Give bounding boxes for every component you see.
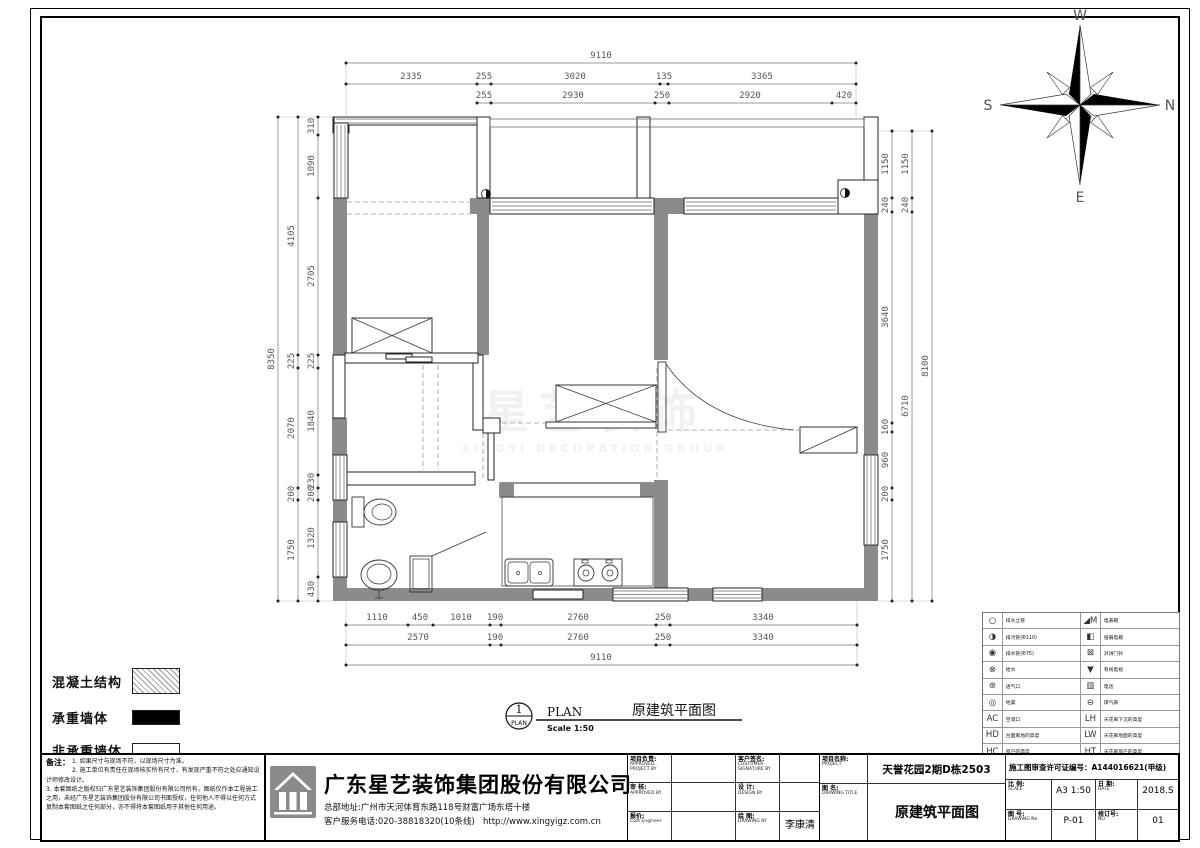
dimensions-top: 9110 2335 255 3020 135 3365 255 2930 250…	[346, 51, 856, 117]
phone-icon: ▥	[1081, 679, 1101, 694]
field-quotation-value	[672, 812, 736, 840]
legend-table-label: 地漏	[1003, 695, 1081, 710]
svg-text:3340: 3340	[752, 633, 774, 643]
svg-text:310: 310	[307, 118, 317, 134]
company-phone: 客户服务电话:020-38818320(10条线)	[324, 817, 475, 827]
company-logo-icon	[270, 766, 316, 830]
svg-text:240: 240	[901, 197, 911, 213]
legend-table-label: 天花离下沉的高度	[1101, 711, 1179, 726]
svg-text:225: 225	[287, 353, 297, 369]
company-name: 广东星艺装饰集团股份有限公司	[324, 769, 632, 799]
field-customer-signature: 客户签名: CUSTOMER SIGNATURE BY	[736, 755, 780, 783]
legend-table-label: 排水立管	[1003, 613, 1081, 628]
legend-table-label: 天花离地面的高度	[1101, 728, 1179, 743]
svg-text:1090: 1090	[307, 155, 317, 177]
svg-text:8100: 8100	[921, 355, 931, 377]
field-design: 设 计: DESIGN BY	[736, 783, 780, 811]
symbol-legend-table: ○ 排水立管 ◢M 电表箱 ◑ 排污管(Φ110) ◧ 强弱电箱 ◉ 排水管(Φ…	[982, 612, 1180, 761]
legend-table-row: ◑ 排污管(Φ110) ◧ 强弱电箱	[983, 629, 1179, 645]
legend-table-row: AC 空调口 LH 天花离下沉的高度	[983, 711, 1179, 727]
legend-table-label: 有线电视	[1101, 662, 1179, 677]
drawing-no-label: 图 号: DRAWING No	[1006, 810, 1052, 840]
bearing-wall-swatch	[132, 710, 180, 725]
svg-text:2335: 2335	[400, 72, 422, 82]
floor-drain-icon: ◎	[983, 695, 1003, 710]
svg-text:2070: 2070	[287, 417, 297, 439]
legend-table-label: 排水管(Φ75)	[1003, 646, 1081, 661]
note-line: 1. 如果尺寸与现场不符，以现场尺寸为准。	[46, 757, 260, 766]
kitchen-sink	[505, 559, 553, 586]
svg-text:2760: 2760	[567, 633, 589, 643]
rev-no-value: 01	[1138, 810, 1178, 840]
svg-text:1150: 1150	[881, 153, 891, 175]
toilet-tank	[352, 497, 364, 527]
title-block: 备注： 1. 如果尺寸与现场不符，以现场尺寸为准。 2. 施工单位有责任在现场核…	[40, 753, 1180, 842]
stove	[574, 559, 622, 586]
company-address: 总部地址:广州市天河体育东路118号财富广场东塔十楼	[324, 801, 632, 813]
drawing-info-section: 施工图审查许可证编号：A144016621(甲级) 比 例: SCALE A3 …	[1006, 755, 1178, 840]
non-bearing-walls	[333, 117, 878, 497]
rev-no-label: 修订号: NO.	[1096, 810, 1138, 840]
svg-text:255: 255	[476, 91, 492, 101]
svg-text:160: 160	[881, 419, 891, 435]
compass-rose: W E S N	[984, 8, 1176, 206]
ceiling-drop-height-icon: LH	[1081, 711, 1101, 726]
gas-meter-icon: ⊖	[1081, 695, 1101, 710]
company-website: http://www.xingyigz.com.cn	[483, 817, 601, 827]
ac-outlet-icon: AC	[983, 711, 1003, 726]
meter-box-icon: ◢M	[1081, 613, 1101, 628]
svg-text:1: 1	[516, 703, 523, 716]
legend-table-row: ⊛ 透气口 ▥ 电话	[983, 679, 1179, 695]
scale-label: 比 例: SCALE	[1006, 780, 1052, 810]
toilet-bowl	[364, 499, 396, 525]
svg-text:3020: 3020	[564, 72, 586, 82]
water-supply-icon: ⊗	[983, 662, 1003, 677]
svg-text:2920: 2920	[739, 91, 761, 101]
legend-row-concrete: 混凝土结构	[52, 668, 202, 694]
svg-text:XINGYI DECORATION GROUP: XINGYI DECORATION GROUP	[462, 442, 728, 455]
svg-text:960: 960	[881, 452, 891, 468]
svg-text:1010: 1010	[450, 613, 472, 623]
legend-table-label: 电话	[1101, 679, 1179, 694]
svg-text:225: 225	[307, 353, 317, 369]
svg-text:430: 430	[307, 581, 317, 597]
note-line: 2. 施工单位有责任在现场核实所有尺寸，有发现严重不符之处应通知设计师修改设计。	[46, 766, 260, 785]
legend-table-row: ◉ 排水管(Φ75) ⊠ 对讲门铃	[983, 646, 1179, 662]
legend-table-label: 强弱电箱	[1101, 629, 1179, 644]
drawing-sheet: 星艺装饰 XINGYI DECORATION GROUP	[0, 0, 1200, 848]
svg-text:250: 250	[655, 613, 671, 623]
legend-table-label: 对讲门铃	[1101, 646, 1179, 661]
svg-text:250: 250	[655, 633, 671, 643]
svg-text:4105: 4105	[287, 225, 297, 247]
svg-text:190: 190	[487, 613, 503, 623]
svg-text:PLAN: PLAN	[511, 720, 527, 727]
svg-text:3365: 3365	[751, 72, 773, 82]
svg-text:200: 200	[287, 486, 297, 502]
legend-table-label: 台面离地的高度	[1003, 728, 1081, 743]
legend-table-label: 电表箱	[1101, 613, 1179, 628]
field-quotation: 报价: Cost Engineer	[628, 812, 672, 840]
dimensions-right: 1150 240 3640 160 960 200 1750 1150 240 …	[878, 131, 932, 601]
intercom-doorbell-icon: ⊠	[1081, 646, 1101, 661]
field-project-lead: 项目负责: APPROVED PROJECT BY	[628, 755, 672, 783]
svg-text:250: 250	[654, 91, 670, 101]
concrete-hatch-swatch	[132, 668, 180, 694]
field-customer-signature-value	[780, 755, 820, 783]
project-name-value: 天誉花园2期D栋2503	[868, 755, 1006, 784]
signature-fields: 项目负责: APPROVED PROJECT BY 客户签名: CUSTOMER…	[628, 755, 820, 840]
dimensions-left: 8350 4105 225 2070 200 1750 310 1090 270…	[267, 117, 333, 601]
svg-text:PLAN: PLAN	[547, 705, 582, 719]
vent-icon: ⊛	[983, 679, 1003, 694]
svg-text:190: 190	[487, 633, 503, 643]
power-box-icon: ◧	[1081, 629, 1101, 644]
counter-height-icon: HD	[983, 728, 1003, 743]
legend-table-row: ○ 排水立管 ◢M 电表箱	[983, 613, 1179, 629]
svg-text:1150: 1150	[901, 153, 911, 175]
washbasin	[361, 560, 397, 590]
svg-text:200: 200	[881, 486, 891, 502]
svg-text:135: 135	[656, 72, 672, 82]
legend-row-bearing-wall: 承重墙体	[52, 708, 202, 727]
svg-text:2705: 2705	[307, 265, 317, 287]
svg-text:3340: 3340	[752, 613, 774, 623]
field-project-lead-value	[672, 755, 736, 783]
date-label: 日 期: DATE	[1096, 780, 1138, 810]
legend-label: 承重墙体	[52, 708, 132, 727]
svg-text:9110: 9110	[590, 51, 612, 61]
svg-text:8350: 8350	[267, 348, 277, 370]
legend-table-row: HD 台面离地的高度 LW 天花离地面的高度	[983, 728, 1179, 744]
legend-table-row: ⊗ 给水 ▼ 有线电视	[983, 662, 1179, 678]
date-value: 2018.S	[1138, 780, 1178, 810]
compass-east-label: E	[1076, 190, 1085, 206]
svg-text:255: 255	[476, 72, 492, 82]
svg-text:1750: 1750	[881, 539, 891, 561]
legend-table-label: 煤气表	[1101, 695, 1179, 710]
legend-label: 混凝土结构	[52, 672, 132, 691]
legend-table-label: 透气口	[1003, 679, 1081, 694]
license-number: 施工图审查许可证编号：A144016621(甲级)	[1006, 755, 1178, 780]
svg-text:2570: 2570	[407, 633, 429, 643]
legend-table-label: 空调口	[1003, 711, 1081, 726]
svg-text:原建筑平面图: 原建筑平面图	[632, 703, 716, 719]
field-drawn-by-value: 李康清	[780, 812, 820, 840]
plan-callout: 1 PLAN PLAN Scale 1:50 原建筑平面图	[506, 703, 742, 733]
svg-text:9110: 9110	[590, 653, 612, 663]
field-audit: 审 核: APPROVED BY	[628, 783, 672, 811]
compass-north-label: N	[1165, 98, 1175, 114]
svg-text:6710: 6710	[901, 395, 911, 417]
field-audit-value	[672, 783, 736, 811]
company-section: 广东星艺装饰集团股份有限公司 总部地址:广州市天河体育东路118号财富广场东塔十…	[266, 755, 628, 840]
dimensions-bottom: 1110 450 1010 190 2760 250 3340 2570 190…	[346, 601, 857, 665]
legend-table-row: ◎ 地漏 ⊖ 煤气表	[983, 695, 1179, 711]
svg-text:1750: 1750	[287, 539, 297, 561]
drain-pipe-icon: ◉	[983, 646, 1003, 661]
legend-table-label: 给水	[1003, 662, 1081, 677]
drawing-title-label: 图 名: DRAWING TITLE	[820, 784, 868, 840]
notes-box: 备注： 1. 如果尺寸与现场不符，以现场尺寸为准。 2. 施工单位有责任在现场核…	[42, 755, 266, 840]
kitchen-counter	[502, 497, 653, 586]
svg-text:2760: 2760	[567, 613, 589, 623]
compass-west-label: W	[1073, 8, 1087, 24]
svg-text:1320: 1320	[307, 527, 317, 549]
scale-value: A3 1:50	[1052, 780, 1096, 810]
svg-text:240: 240	[881, 197, 891, 213]
svg-text:2930: 2930	[562, 91, 584, 101]
notes-heading: 备注：	[46, 757, 70, 768]
svg-text:450: 450	[412, 613, 428, 623]
project-name-label: 项目名称: PROJECT	[820, 755, 868, 784]
svg-text:1840: 1840	[307, 410, 317, 432]
sewage-pipe-icon: ◑	[983, 629, 1003, 644]
drain-riser-icon: ○	[983, 613, 1003, 628]
svg-text:3640: 3640	[881, 306, 891, 328]
svg-text:200: 200	[307, 486, 317, 502]
ceiling-floor-height-icon: LW	[1081, 728, 1101, 743]
cable-tv-icon: ▼	[1081, 662, 1101, 677]
field-drawn-by: 绘 图: DRAWING BY	[736, 812, 780, 840]
svg-text:Scale 1:50: Scale 1:50	[547, 724, 594, 733]
legend-table-label: 排污管(Φ110)	[1003, 629, 1081, 644]
field-design-value	[780, 783, 820, 811]
project-section: 项目名称: PROJECT 天誉花园2期D栋2503 图 名: DRAWING …	[820, 755, 1006, 840]
compass-south-label: S	[984, 98, 993, 114]
note-line: 3. 本套图纸之版权归广东星艺装饰集团股份有限公司所有，图纸仅作本工程施工之用，…	[46, 785, 260, 813]
drawing-title-value: 原建筑平面图	[868, 784, 1006, 840]
drawing-no-value: P-01	[1052, 810, 1096, 840]
company-contact: 客户服务电话:020-38818320(10条线) http://www.xin…	[324, 815, 632, 827]
svg-text:420: 420	[836, 91, 852, 101]
svg-text:1110: 1110	[366, 613, 388, 623]
